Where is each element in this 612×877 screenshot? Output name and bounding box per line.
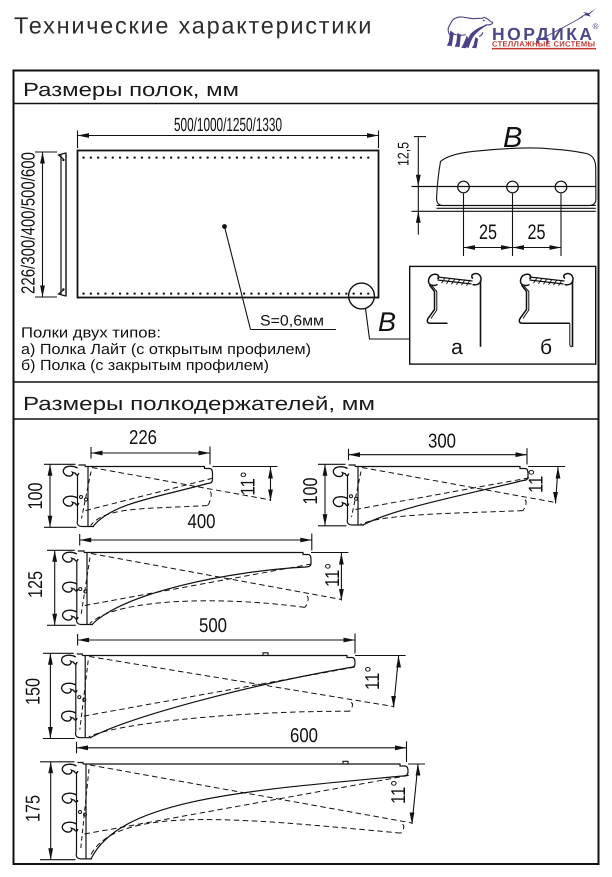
- svg-text:B: B: [503, 122, 522, 154]
- svg-text:12,5: 12,5: [396, 142, 413, 166]
- svg-text:25: 25: [479, 221, 497, 244]
- svg-text:Размеры полок, мм: Размеры полок, мм: [23, 80, 239, 101]
- svg-text:125: 125: [25, 571, 47, 598]
- svg-text:11°: 11°: [388, 780, 410, 804]
- svg-text:400: 400: [188, 511, 216, 533]
- svg-text:Технические характеристики: Технические характеристики: [14, 13, 373, 39]
- svg-text:B: B: [378, 307, 396, 337]
- svg-text:150: 150: [23, 678, 45, 705]
- svg-text:11°: 11°: [362, 666, 384, 690]
- svg-text:100: 100: [25, 483, 47, 510]
- svg-text:б: б: [540, 336, 552, 359]
- svg-text:226: 226: [129, 427, 157, 449]
- svg-text:S=0,6мм: S=0,6мм: [260, 313, 324, 330]
- svg-text:Полки двух типов:: Полки двух типов:: [21, 326, 161, 342]
- svg-text:25: 25: [528, 221, 546, 244]
- svg-text:СТЕЛЛАЖНЫЕ СИСТЕМЫ: СТЕЛЛАЖНЫЕ СИСТЕМЫ: [492, 40, 595, 49]
- svg-text:600: 600: [290, 725, 318, 747]
- svg-text:100: 100: [300, 478, 322, 505]
- svg-text:Размеры полкодержателей, мм: Размеры полкодержателей, мм: [23, 394, 375, 415]
- svg-text:175: 175: [23, 795, 45, 822]
- svg-text:б) Полка (с закрытым профилем): б) Полка (с закрытым профилем): [21, 358, 269, 374]
- svg-text:300: 300: [428, 431, 456, 453]
- svg-text:11°: 11°: [526, 469, 548, 493]
- svg-text:а) Полка Лайт (с открытым проф: а) Полка Лайт (с открытым профилем): [21, 342, 311, 358]
- svg-text:11°: 11°: [322, 563, 344, 587]
- svg-text:®: ®: [593, 22, 599, 31]
- svg-text:226/300/400/500/600: 226/300/400/500/600: [19, 152, 40, 294]
- svg-text:500: 500: [199, 615, 227, 637]
- svg-text:11°: 11°: [238, 472, 260, 496]
- svg-text:а: а: [451, 336, 463, 359]
- svg-text:500/1000/1250/1330: 500/1000/1250/1330: [174, 115, 282, 136]
